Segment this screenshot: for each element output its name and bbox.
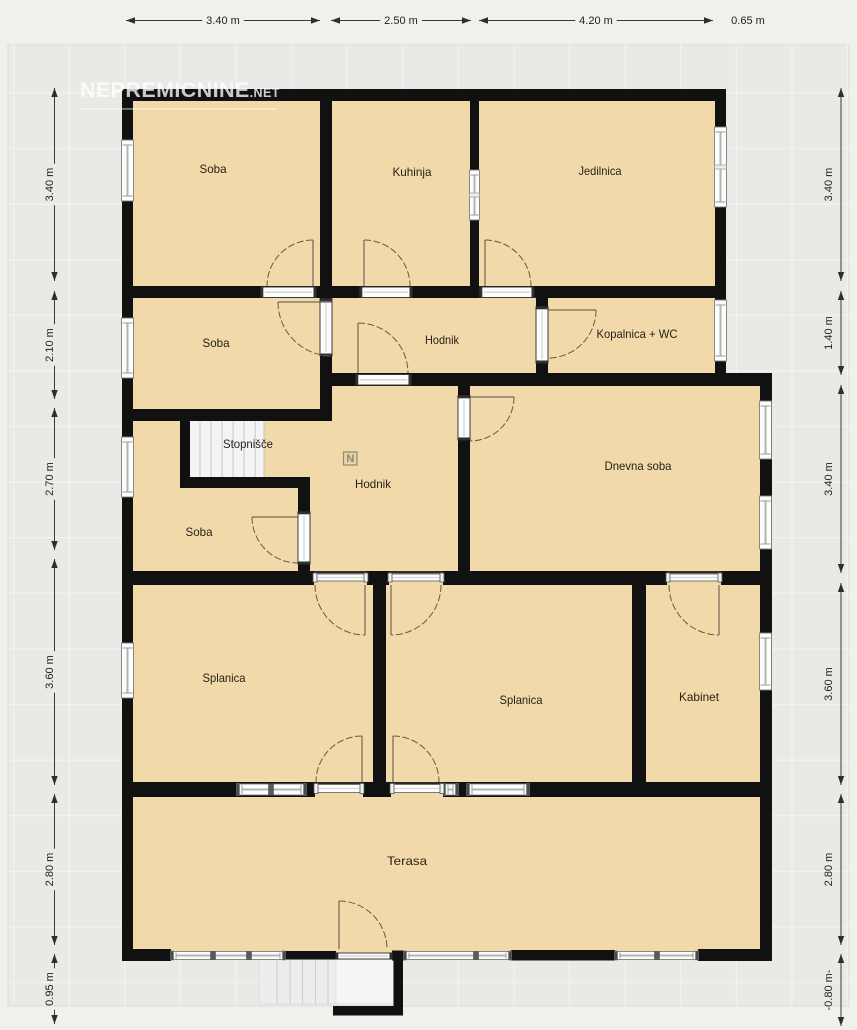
svg-text:4.20 m: 4.20 m bbox=[579, 15, 613, 27]
svg-text:2.80 m: 2.80 m bbox=[823, 853, 835, 887]
svg-text:2.10 m: 2.10 m bbox=[44, 328, 56, 362]
svg-text:3.40 m: 3.40 m bbox=[823, 168, 835, 202]
svg-text:Hodnik: Hodnik bbox=[425, 333, 460, 347]
svg-text:3.60 m: 3.60 m bbox=[823, 667, 835, 701]
svg-text:Splanica: Splanica bbox=[500, 693, 543, 707]
svg-text:-0.80 m-: -0.80 m- bbox=[823, 969, 835, 1010]
svg-text:Soba: Soba bbox=[186, 525, 213, 539]
svg-text:3.40 m: 3.40 m bbox=[823, 462, 835, 496]
svg-text:Kabinet: Kabinet bbox=[679, 690, 720, 704]
svg-text:Soba: Soba bbox=[200, 162, 227, 176]
svg-text:Jedilnica: Jedilnica bbox=[579, 164, 622, 178]
svg-text:Soba: Soba bbox=[203, 336, 230, 350]
svg-text:2.50 m: 2.50 m bbox=[384, 15, 418, 27]
svg-text:0.65 m: 0.65 m bbox=[731, 15, 765, 27]
svg-text:Kopalnica + WC: Kopalnica + WC bbox=[597, 327, 678, 341]
svg-text:2.80 m: 2.80 m bbox=[44, 853, 56, 887]
svg-text:Kuhinja: Kuhinja bbox=[393, 165, 432, 179]
svg-text:2.70 m: 2.70 m bbox=[44, 462, 56, 496]
svg-text:Hodnik: Hodnik bbox=[355, 477, 392, 491]
svg-text:N: N bbox=[346, 453, 354, 465]
svg-text:3.60 m: 3.60 m bbox=[44, 655, 56, 689]
svg-text:Stopnišče: Stopnišče bbox=[223, 437, 273, 451]
svg-text:0.95 m: 0.95 m bbox=[44, 972, 56, 1006]
svg-text:Terasa: Terasa bbox=[387, 854, 427, 868]
svg-text:Dnevna soba: Dnevna soba bbox=[605, 459, 672, 473]
svg-text:3.40 m: 3.40 m bbox=[44, 168, 56, 202]
svg-text:Splanica: Splanica bbox=[203, 671, 246, 685]
svg-text:3.40 m: 3.40 m bbox=[206, 15, 240, 27]
svg-text:1.40 m: 1.40 m bbox=[823, 316, 835, 350]
